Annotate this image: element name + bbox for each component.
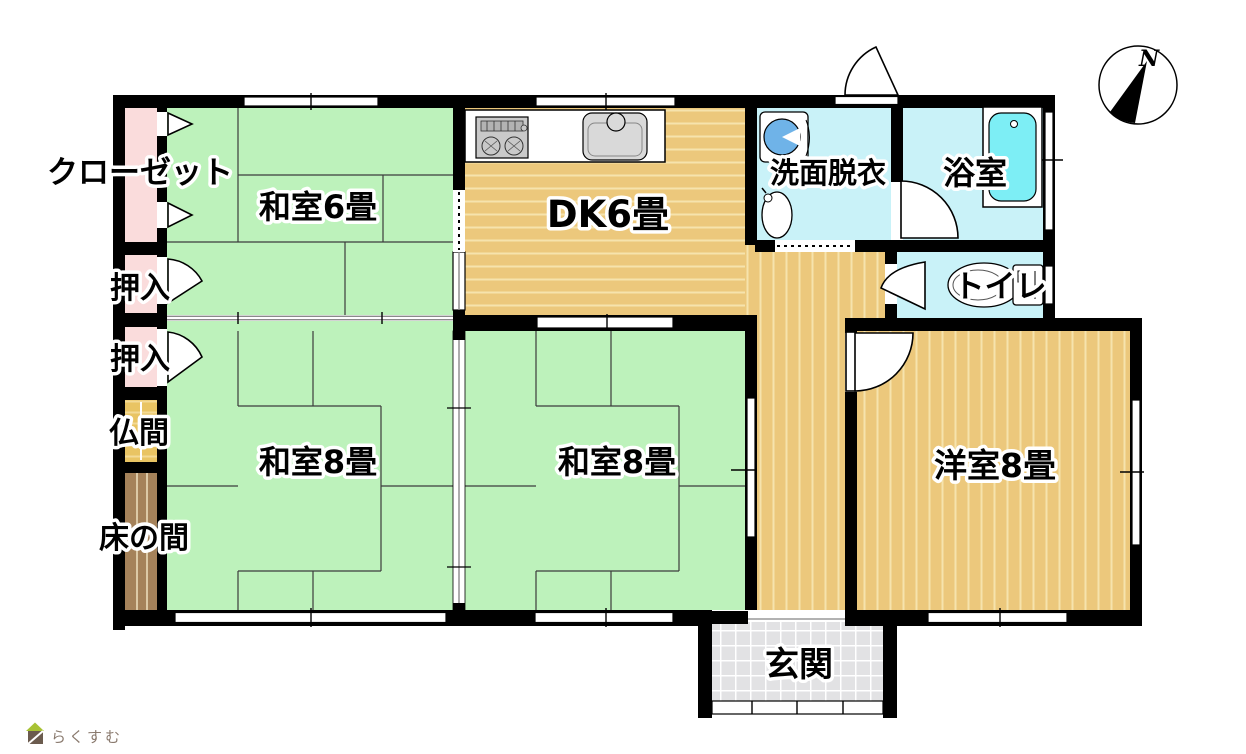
room-label-senmen: 洗面脱衣 [770, 156, 886, 190]
backdoor-leaf [835, 97, 898, 105]
room-label-dk: DK6畳 [547, 193, 669, 236]
window-bath-right [1045, 112, 1053, 230]
hallway-lower-lines [757, 318, 845, 610]
compass-north-label: N [1138, 46, 1160, 72]
room-label-bath: 浴室 [943, 154, 1007, 192]
room-label-youshitsu8: 洋室8畳 [934, 446, 1056, 485]
wall-dk-right [745, 107, 757, 245]
room-label-toilet: トイレ [954, 269, 1047, 305]
gap-closet-1 [157, 112, 167, 136]
partition-cap-bottom [453, 603, 465, 612]
compass: N [1099, 46, 1177, 124]
wall-genkan-top-left [712, 611, 748, 624]
house-icon [26, 723, 44, 745]
wall-closet-divider-3 [113, 387, 167, 400]
hallway-upper-lines [745, 245, 885, 318]
wall-youshitsu-left [845, 392, 857, 610]
room-label-genkan: 玄関 [765, 645, 833, 685]
wall-genkan-left [698, 610, 712, 718]
site-logo: らくすむ [26, 723, 123, 747]
wall-closet-divider-1 [113, 242, 167, 255]
wall-genkan-top-right [845, 611, 883, 624]
room-label-closet: クローゼット [47, 155, 233, 191]
gap-closet-2 [157, 202, 167, 228]
room-label-tokonoma: 床の間 [99, 521, 189, 556]
wall-toilet-left-a [885, 252, 897, 264]
room-label-butsuma: 仏間 [109, 416, 169, 451]
wall-toilet-left-b [885, 304, 897, 318]
wall-genkan-right [883, 610, 897, 718]
wall-senmen-bath [891, 107, 903, 182]
wall-top-youshitsu [845, 318, 1142, 331]
backdoor-swing-icon [845, 47, 898, 95]
floor-plan-canvas: N クローゼット 和室6畳 DK6畳 洗面脱衣 浴室 トイレ 押入 押入 仏間 … [0, 0, 1246, 754]
logo-text: らくすむ [51, 728, 123, 746]
wall-closet-divider-4 [113, 462, 167, 473]
floor-plan-page: N クローゼット 和室6畳 DK6畳 洗面脱衣 浴室 トイレ 押入 押入 仏間 … [0, 0, 1246, 754]
washing-machine-icon [760, 112, 810, 162]
room-label-oshiire-1: 押入 [110, 271, 170, 306]
kitchen-sink-icon [583, 113, 647, 160]
window-bottom-washitsu8b [535, 613, 673, 623]
wall-dk-left-a [453, 107, 465, 190]
wall-closet-divider-2 [113, 313, 167, 327]
window-youshitsu-bottom [928, 613, 1067, 623]
room-label-oshiire-2: 押入 [110, 342, 170, 377]
room-label-washitsu6: 和室6畳 [259, 188, 377, 226]
slider-dk-washitsu8b [537, 317, 673, 328]
partition-cap-top [453, 331, 465, 340]
room-label-washitsu8a: 和室8畳 [259, 443, 377, 481]
room-label-washitsu8b: 和室8畳 [558, 443, 676, 481]
slider-washitsu8b-hall [747, 398, 755, 537]
stove-icon [476, 117, 528, 158]
